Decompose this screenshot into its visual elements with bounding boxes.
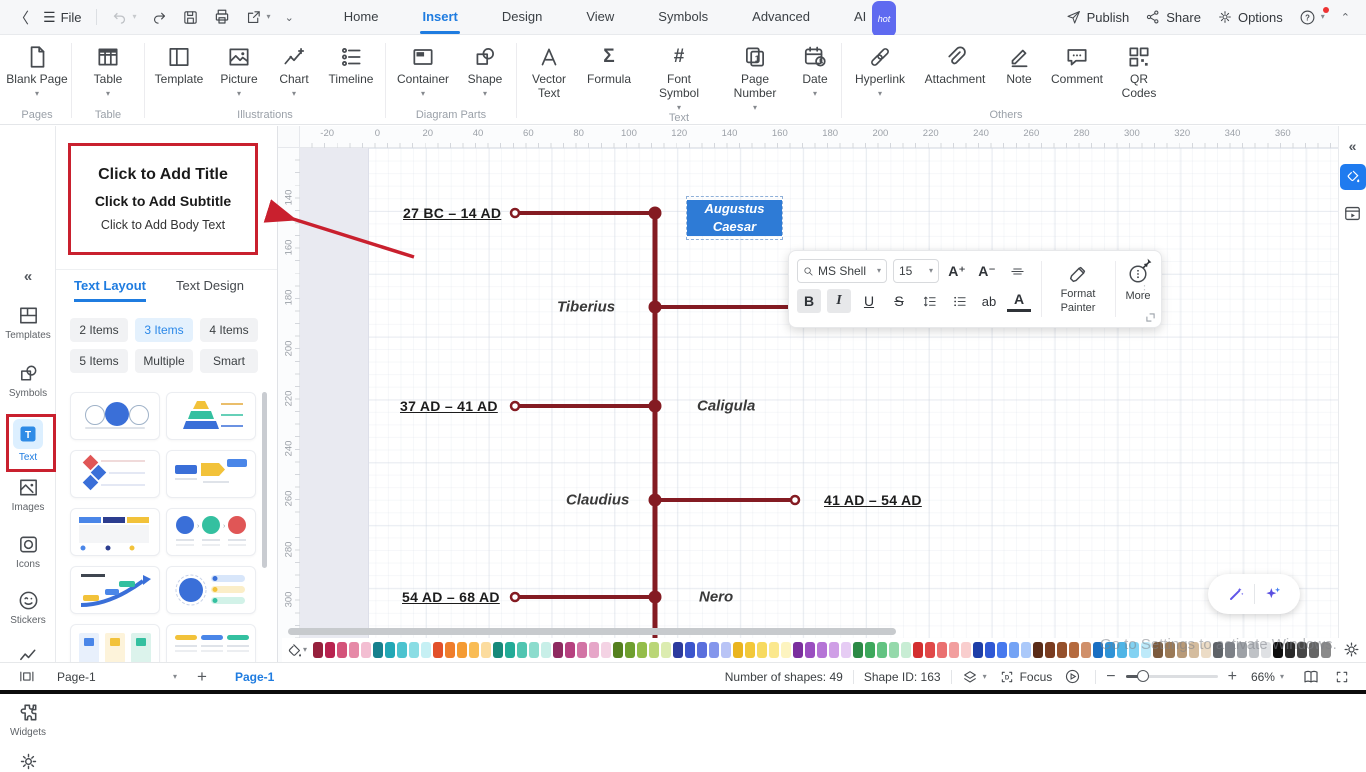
tab-home[interactable]: Home (322, 0, 401, 34)
color-swatch[interactable] (313, 642, 323, 658)
tab-symbols[interactable]: Symbols (636, 0, 730, 34)
hash-icon: # (674, 44, 685, 70)
pan-map-button[interactable] (1302, 668, 1320, 686)
toolbar-resize-icon[interactable] (1146, 313, 1155, 322)
color-swatch[interactable] (649, 642, 659, 658)
placeholder-title: Click to Add Title (98, 166, 228, 184)
template-thumbnail-venn[interactable] (70, 392, 160, 440)
group-label-others: Others (845, 109, 1167, 124)
color-swatch[interactable] (493, 642, 503, 658)
zoom-level-select[interactable]: 66% ▾ (1251, 670, 1284, 684)
italic-button[interactable]: I (827, 289, 851, 313)
zoom-level-value: 66% (1251, 670, 1275, 684)
notification-dot (1323, 7, 1329, 13)
color-swatch[interactable] (973, 642, 983, 658)
items-3-button[interactable]: 3 Items (135, 318, 193, 342)
divider (1254, 584, 1255, 604)
font-family-value: MS Shell (818, 264, 866, 278)
sidebar-item-images[interactable]: Images (0, 476, 56, 513)
timeline-date-augustus[interactable]: 27 BC – 14 AD (403, 205, 501, 221)
drawing-canvas[interactable]: 27 BC – 14 AD Augustus Caesar Tiberius 3… (300, 148, 1338, 662)
color-swatch[interactable] (781, 642, 791, 658)
file-menu[interactable]: ☰ File (43, 9, 82, 26)
items-5-button[interactable]: 5 Items (70, 349, 128, 373)
sigma-icon: Σ (603, 44, 614, 70)
template-thumbnail-arrows[interactable] (166, 450, 256, 498)
format-painter-label: Format Painter (1047, 288, 1109, 316)
color-swatch[interactable] (985, 642, 995, 658)
color-swatch[interactable] (517, 642, 527, 658)
attachment-button[interactable]: Attachment (915, 35, 995, 87)
blank-page-button[interactable]: Blank Page▾ (6, 35, 68, 98)
ruler-mark: 240 (283, 441, 294, 457)
publish-label: Publish (1087, 10, 1130, 25)
color-swatch[interactable] (349, 642, 359, 658)
color-swatch[interactable] (709, 642, 719, 658)
timeline-name-tiberius[interactable]: Tiberius (557, 299, 615, 316)
color-swatch[interactable] (1033, 642, 1043, 658)
color-swatch[interactable] (757, 642, 767, 658)
placeholder-body: Click to Add Body Text (101, 218, 225, 232)
note-button[interactable]: Note (995, 35, 1043, 87)
page-selector-value: Page-1 (57, 670, 96, 684)
color-swatch[interactable] (961, 642, 971, 658)
font-size-select[interactable]: 15 ▾ (893, 259, 939, 283)
color-swatch[interactable] (1021, 642, 1031, 658)
format-painter-icon (1067, 263, 1089, 285)
bullet-list-button[interactable] (947, 289, 971, 313)
color-swatch[interactable] (829, 642, 839, 658)
font-family-select[interactable]: MS Shell ▾ (797, 259, 887, 283)
svg-text:›: › (197, 523, 200, 530)
tab-advanced[interactable]: Advanced (730, 0, 832, 34)
ruler-mark: 180 (283, 290, 294, 306)
timeline-name-augustus[interactable]: Augustus Caesar (687, 200, 782, 235)
redo-button[interactable] (151, 9, 168, 26)
color-swatch[interactable] (373, 642, 383, 658)
more-tools-icon[interactable]: ⌄ (285, 11, 294, 24)
tab-ai-label: AI (854, 9, 866, 24)
sidebar-item-stickers[interactable]: Stickers (0, 589, 56, 626)
color-swatch[interactable] (925, 642, 935, 658)
status-bar: Page-1 ▾ + Page-1 Number of shapes: 49 S… (0, 662, 1366, 690)
color-swatch[interactable] (421, 642, 431, 658)
tab-text-layout[interactable]: Text Layout (74, 278, 146, 302)
item-count-buttons: 2 Items 3 Items 4 Items 5 Items Multiple… (70, 318, 266, 373)
color-swatch[interactable] (913, 642, 923, 658)
color-swatch[interactable] (1081, 642, 1091, 658)
color-swatch[interactable] (565, 642, 575, 658)
group-label-diagram-parts: Diagram Parts (389, 109, 513, 124)
hamburger-icon: ☰ (43, 9, 56, 26)
table-button[interactable]: Table▾ (75, 35, 141, 98)
activate-windows-watermark: Go to Settings to activate Windows. (1100, 636, 1337, 653)
ruler-mark: 280 (283, 541, 294, 557)
date-button[interactable]: Date▾ (792, 35, 838, 98)
tab-insert[interactable]: Insert (400, 0, 479, 34)
timeline-name-claudius[interactable]: Claudius (566, 492, 629, 509)
share-label: Share (1166, 10, 1201, 25)
screen-edge (0, 690, 1366, 694)
decrease-font-button[interactable]: A⁻ (975, 259, 999, 283)
left-sidebar: « Templates Symbols T Text Images Icons … (0, 126, 56, 662)
collapse-ribbon-icon[interactable]: ⌃ (1341, 11, 1350, 24)
template-thumbnail-growth[interactable] (70, 566, 160, 614)
group-label-table: Table (75, 109, 141, 124)
color-swatch[interactable] (541, 642, 551, 658)
undo-button[interactable]: ▾ (111, 9, 137, 26)
options-button[interactable]: Options (1217, 9, 1283, 25)
palette-settings-button[interactable] (1342, 640, 1360, 659)
tab-ai[interactable]: AI hot (832, 0, 888, 34)
text-placeholder-preview[interactable]: Click to Add Title Click to Add Subtitle… (68, 143, 258, 255)
color-swatch[interactable] (469, 642, 479, 658)
color-swatch[interactable] (997, 642, 1007, 658)
font-symbol-button[interactable]: # Font Symbol▾ (640, 35, 718, 112)
color-swatch[interactable] (601, 642, 611, 658)
template-thumbnail-diamonds[interactable] (70, 450, 160, 498)
svg-text:D: D (1004, 675, 1009, 681)
export-button[interactable]: ▾ (245, 9, 271, 26)
sidebar-item-templates[interactable]: Templates (0, 304, 56, 341)
templates-icon (17, 304, 40, 327)
ribbon: Blank Page▾ Pages Table▾ Table Template … (0, 35, 1366, 125)
color-swatch[interactable] (1057, 642, 1067, 658)
help-button[interactable]: ? ▾ (1299, 9, 1325, 26)
color-swatch[interactable] (937, 642, 947, 658)
collapse-right-panel-icon[interactable]: « (1339, 138, 1366, 154)
hyperlink-button[interactable]: Hyperlink▾ (845, 35, 915, 98)
svg-text:›: › (223, 523, 226, 530)
svg-text:?: ? (1305, 13, 1310, 22)
focus-label: Focus (1020, 670, 1053, 684)
tab-text-design[interactable]: Text Design (176, 278, 244, 302)
file-menu-label: File (61, 10, 82, 25)
template-thumbnail-cards[interactable] (70, 624, 160, 662)
shape-button[interactable]: Shape▾ (457, 35, 513, 98)
increase-font-button[interactable]: A⁺ (945, 259, 969, 283)
group-label-illustrations: Illustrations (148, 109, 382, 124)
color-swatch[interactable] (817, 642, 827, 658)
color-swatch[interactable] (397, 642, 407, 658)
zoom-slider-knob[interactable] (1137, 670, 1149, 682)
color-swatch[interactable] (457, 642, 467, 658)
fill-color-button[interactable]: ▾ (286, 642, 307, 659)
layers-button[interactable]: ▾ (962, 669, 987, 685)
ruler-mark: 140 (283, 189, 294, 205)
color-swatch[interactable] (661, 642, 671, 658)
annotation-highlight-box (6, 414, 56, 472)
stickers-icon (17, 589, 40, 612)
zoom-in-button[interactable]: + (1228, 668, 1237, 686)
template-thumbnail-lists[interactable] (166, 624, 256, 662)
timeline-date-caligula[interactable]: 37 AD – 41 AD (400, 398, 498, 414)
gear-icon (18, 751, 39, 772)
title-bar: 〈 ☰ File ▾ ▾ ⌄ Home Insert Design View S… (0, 0, 1366, 35)
ruler-corner (278, 126, 300, 148)
paint-bucket-icon (1345, 169, 1361, 185)
ribbon-tabs: Home Insert Design View Symbols Advanced… (322, 0, 889, 34)
canvas-horizontal-scrollbar[interactable] (288, 628, 896, 635)
color-swatch[interactable] (889, 642, 899, 658)
align-button[interactable] (1005, 259, 1029, 283)
color-swatch[interactable] (685, 642, 695, 658)
share-button[interactable]: Share (1145, 9, 1201, 25)
hot-badge: hot (872, 1, 897, 37)
color-swatch[interactable] (865, 642, 875, 658)
images-icon (17, 476, 40, 499)
page-tab[interactable]: Page-1 (235, 670, 274, 684)
tab-design[interactable]: Design (480, 0, 564, 34)
text-highlight-button[interactable]: ab (977, 289, 1001, 313)
color-swatch[interactable] (901, 642, 911, 658)
zoom-slider[interactable] (1126, 675, 1218, 678)
line-spacing-button[interactable] (917, 289, 941, 313)
color-swatch[interactable] (721, 642, 731, 658)
presentation-panel-button[interactable] (1343, 204, 1363, 223)
color-swatch[interactable] (805, 642, 815, 658)
color-swatch[interactable] (853, 642, 863, 658)
template-thumbnail-callouts[interactable] (166, 566, 256, 614)
print-button[interactable] (213, 8, 231, 26)
template-button[interactable]: Template (148, 35, 210, 87)
color-swatch[interactable] (385, 642, 395, 658)
shapes-count: Number of shapes: 49 (725, 670, 843, 684)
color-swatch[interactable] (625, 642, 635, 658)
color-swatch[interactable] (793, 642, 803, 658)
toolbar-drag-dots[interactable]: ⋮ (1139, 283, 1151, 296)
tab-view[interactable]: View (564, 0, 636, 34)
magic-wand-button[interactable] (1226, 584, 1246, 604)
template-thumbnail-pyramid[interactable] (166, 392, 256, 440)
color-swatch[interactable] (445, 642, 455, 658)
qr-codes-button[interactable]: QR Codes (1111, 35, 1167, 101)
color-swatch[interactable] (589, 642, 599, 658)
items-2-button[interactable]: 2 Items (70, 318, 128, 342)
color-swatch[interactable] (637, 642, 647, 658)
template-thumbnail-table[interactable] (70, 508, 160, 556)
color-swatch[interactable] (361, 642, 371, 658)
font-size-value: 15 (899, 264, 912, 278)
timeline-name-nero[interactable]: Nero (699, 589, 733, 606)
underline-button[interactable]: U (857, 289, 881, 313)
color-swatch[interactable] (553, 642, 563, 658)
color-swatch[interactable] (949, 642, 959, 658)
color-swatch[interactable] (529, 642, 539, 658)
font-color-button[interactable]: A (1007, 289, 1031, 312)
presentation-play-button[interactable] (1064, 668, 1081, 685)
panel-scrollbar[interactable] (262, 392, 267, 568)
chart-button[interactable]: Chart▾ (268, 35, 320, 98)
template-thumbnail-circles[interactable]: ›› (166, 508, 256, 556)
formula-button[interactable]: Σ Formula (578, 35, 640, 87)
icons-icon (17, 533, 40, 556)
color-swatch[interactable] (745, 642, 755, 658)
color-swatch[interactable] (1069, 642, 1079, 658)
color-swatch[interactable] (337, 642, 347, 658)
group-label-text: Text (520, 112, 838, 127)
floating-text-toolbar: MS Shell ▾ 15 ▾ A⁺ A⁻ B I U S ab A Forma… (788, 250, 1162, 328)
sidebar-item-icons[interactable]: Icons (0, 533, 56, 570)
ruler-mark: 260 (283, 491, 294, 507)
timeline-name-caligula[interactable]: Caligula (697, 398, 755, 415)
timeline-date-nero[interactable]: 54 AD – 68 AD (402, 589, 500, 605)
collapse-panel-icon[interactable]: « (0, 268, 56, 285)
color-swatch[interactable] (505, 642, 515, 658)
add-page-button[interactable]: + (197, 667, 207, 687)
color-swatch[interactable] (409, 642, 419, 658)
shape-id: Shape ID: 163 (864, 670, 941, 684)
zoom-out-button[interactable]: − (1106, 668, 1115, 686)
divider (96, 9, 97, 25)
vector-text-button[interactable]: Vector Text (520, 35, 578, 101)
color-swatch[interactable] (877, 642, 887, 658)
svg-text:1: 1 (755, 54, 760, 64)
options-label: Options (1238, 10, 1283, 25)
ruler-mark: 220 (283, 390, 294, 406)
ruler-mark: 160 (283, 240, 294, 256)
fill-style-button[interactable] (1340, 164, 1366, 190)
back-icon[interactable]: 〈 (14, 7, 29, 28)
color-swatch[interactable] (733, 642, 743, 658)
ai-assistant-pill (1208, 574, 1300, 614)
strikethrough-button[interactable]: S (887, 289, 911, 313)
fullscreen-button[interactable] (1334, 669, 1350, 685)
widgets-icon (17, 701, 40, 724)
color-swatch[interactable] (433, 642, 443, 658)
sidebar-item-widgets[interactable]: Widgets (0, 701, 56, 738)
timeline-button[interactable]: Timeline (320, 35, 382, 87)
items-smart-button[interactable]: Smart (200, 349, 258, 373)
panel-tabs: Text Layout Text Design (74, 278, 244, 302)
publish-button[interactable]: Publish (1066, 9, 1130, 25)
symbols-icon (17, 362, 40, 385)
focus-button[interactable]: D Focus (999, 669, 1053, 685)
color-swatch[interactable] (673, 642, 683, 658)
bold-button[interactable]: B (797, 289, 821, 313)
ruler-mark: 300 (283, 592, 294, 608)
color-swatch[interactable] (613, 642, 623, 658)
items-multiple-button[interactable]: Multiple (135, 349, 193, 373)
format-painter-button[interactable]: Format Painter (1047, 263, 1109, 316)
color-swatch[interactable] (577, 642, 587, 658)
page-number-button[interactable]: 1 Page Number▾ (718, 35, 792, 112)
pin-toolbar-icon[interactable] (1140, 257, 1153, 270)
search-icon (803, 266, 814, 277)
items-4-button[interactable]: 4 Items (200, 318, 258, 342)
color-swatch[interactable] (325, 642, 335, 658)
ai-sparkle-button[interactable] (1263, 584, 1283, 604)
page-view-icon[interactable] (18, 668, 35, 685)
comment-button[interactable]: Comment (1043, 35, 1111, 87)
ruler-mark: 200 (283, 340, 294, 356)
color-swatch[interactable] (481, 642, 491, 658)
color-swatch[interactable] (769, 642, 779, 658)
selected-text-box[interactable]: Augustus Caesar (686, 196, 783, 240)
timeline-date-claudius[interactable]: 41 AD – 54 AD (824, 492, 922, 508)
text-panel: Click to Add Title Click to Add Subtitle… (56, 126, 278, 662)
group-label-pages: Pages (6, 109, 68, 124)
color-swatch[interactable] (697, 642, 707, 658)
color-swatch[interactable] (1009, 642, 1019, 658)
color-swatch[interactable] (1045, 642, 1055, 658)
sidebar-item-symbols[interactable]: Symbols (0, 362, 56, 399)
sidebar-settings-button[interactable] (0, 751, 56, 772)
right-sidebar: « (1338, 126, 1366, 638)
save-button[interactable] (182, 9, 199, 26)
page-selector[interactable]: Page-1 ▾ (57, 670, 177, 684)
color-swatch[interactable] (841, 642, 851, 658)
picture-button[interactable]: Picture▾ (210, 35, 268, 98)
container-button[interactable]: Container▾ (389, 35, 457, 98)
placeholder-subtitle: Click to Add Subtitle (95, 193, 231, 209)
